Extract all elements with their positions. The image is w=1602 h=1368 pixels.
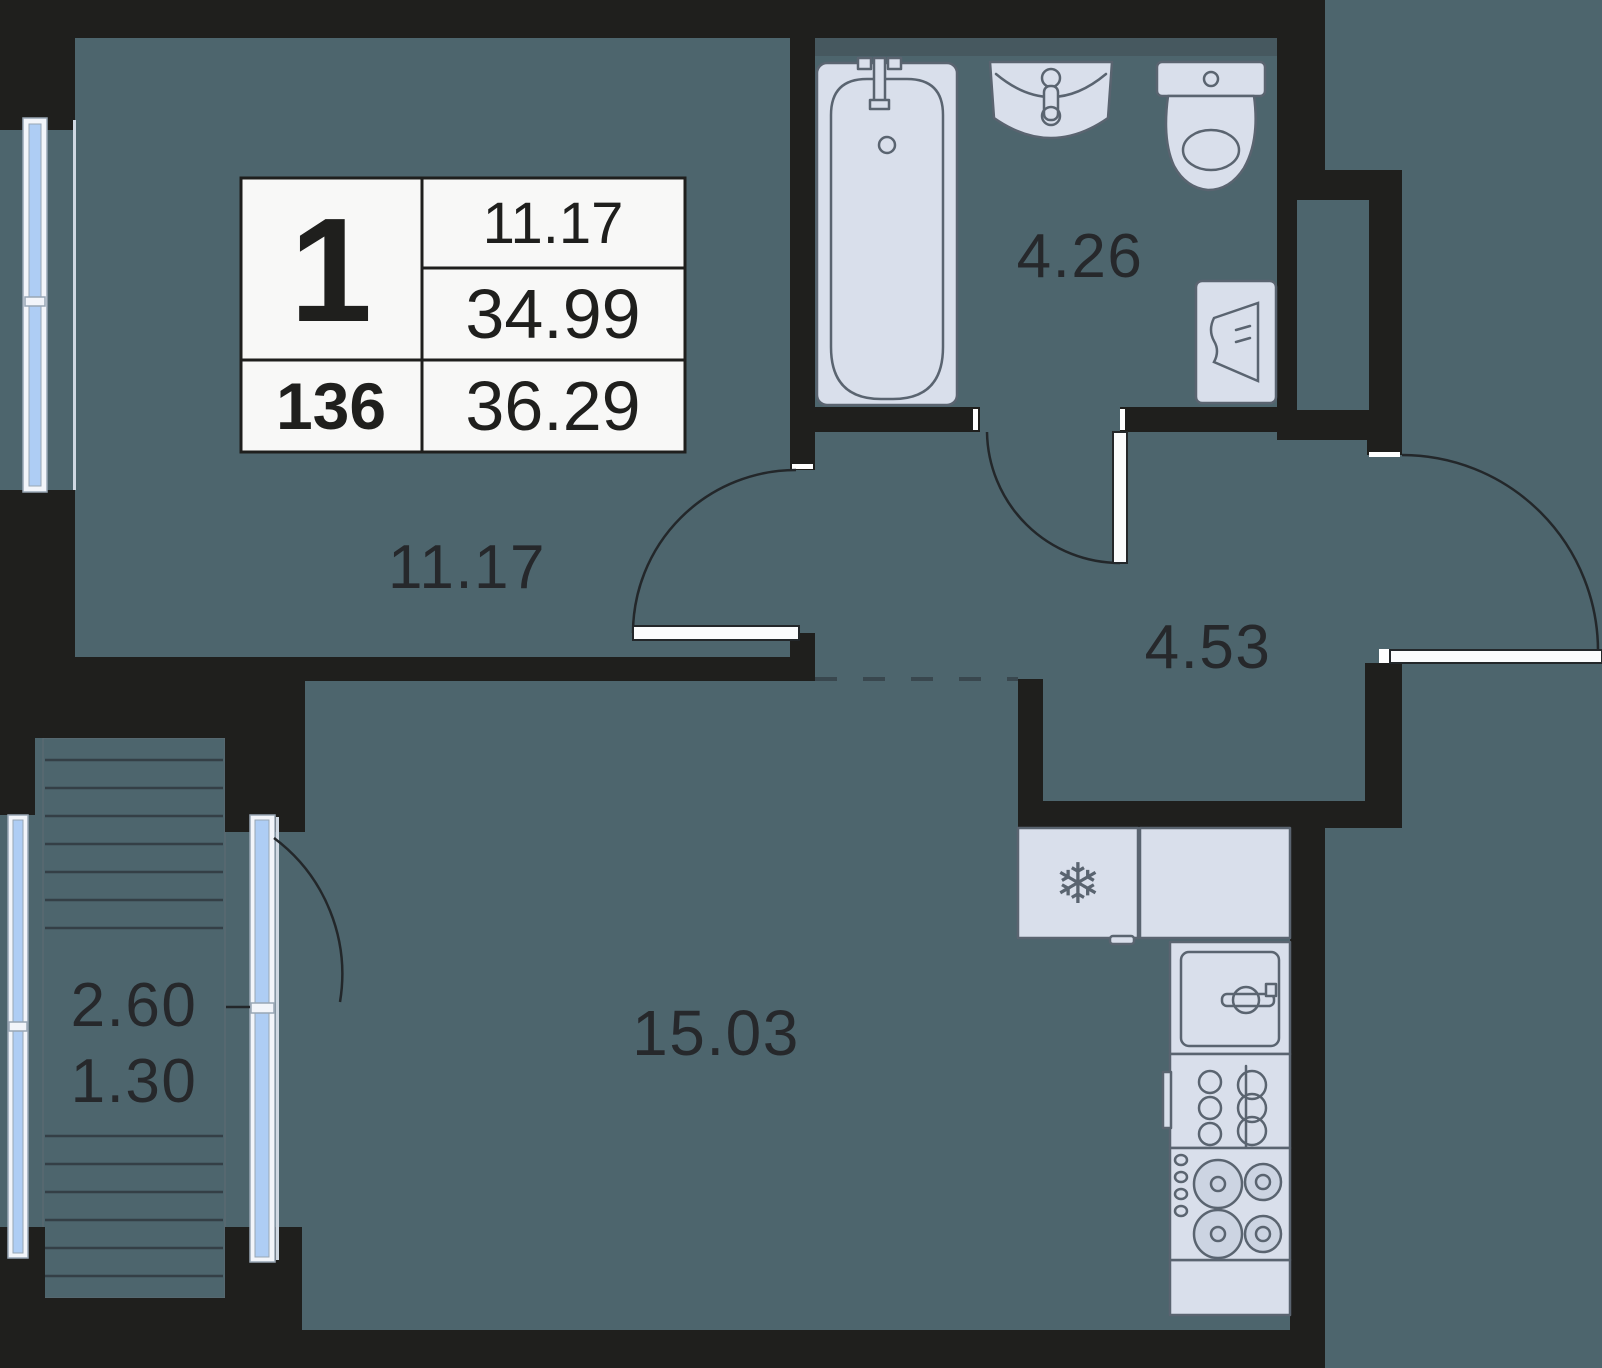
washing-machine-icon: [1196, 281, 1276, 403]
living-area-value: 11.17: [483, 191, 624, 256]
bathroom-sink-icon: [990, 62, 1112, 138]
unit-number: 136: [276, 369, 386, 443]
rooms-count: 1: [290, 188, 372, 353]
ventilation-shaft: [1297, 200, 1369, 410]
hallway-area-label: 4.53: [1145, 613, 1272, 682]
balcony-reduced-area-label: 1.30: [71, 1047, 198, 1116]
balcony-full-area-label: 2.60: [71, 971, 198, 1040]
snowflake-icon: ❄: [1055, 852, 1102, 917]
kitchen-sink-icon: [1170, 942, 1290, 1054]
balcony-window: [8, 815, 28, 1258]
bedroom-area-label: 11.17: [388, 533, 546, 602]
kitchen-living-area-label: 15.03: [632, 997, 800, 1069]
total-area-value: 36.29: [465, 367, 640, 445]
unit-info-table: 1 136 11.17 34.99 36.29: [241, 178, 685, 452]
floor-plan: ❄ 1: [0, 0, 1602, 1368]
dish-rack-icon: [1163, 1054, 1290, 1148]
stove-icon: [1170, 1148, 1290, 1260]
area-without-balcony-value: 34.99: [465, 275, 640, 353]
bathroom-top-recess: [815, 38, 1277, 56]
fridge: ❄: [1018, 828, 1138, 944]
bathroom-area-label: 4.26: [1017, 222, 1144, 291]
bathtub-icon: [817, 58, 957, 405]
